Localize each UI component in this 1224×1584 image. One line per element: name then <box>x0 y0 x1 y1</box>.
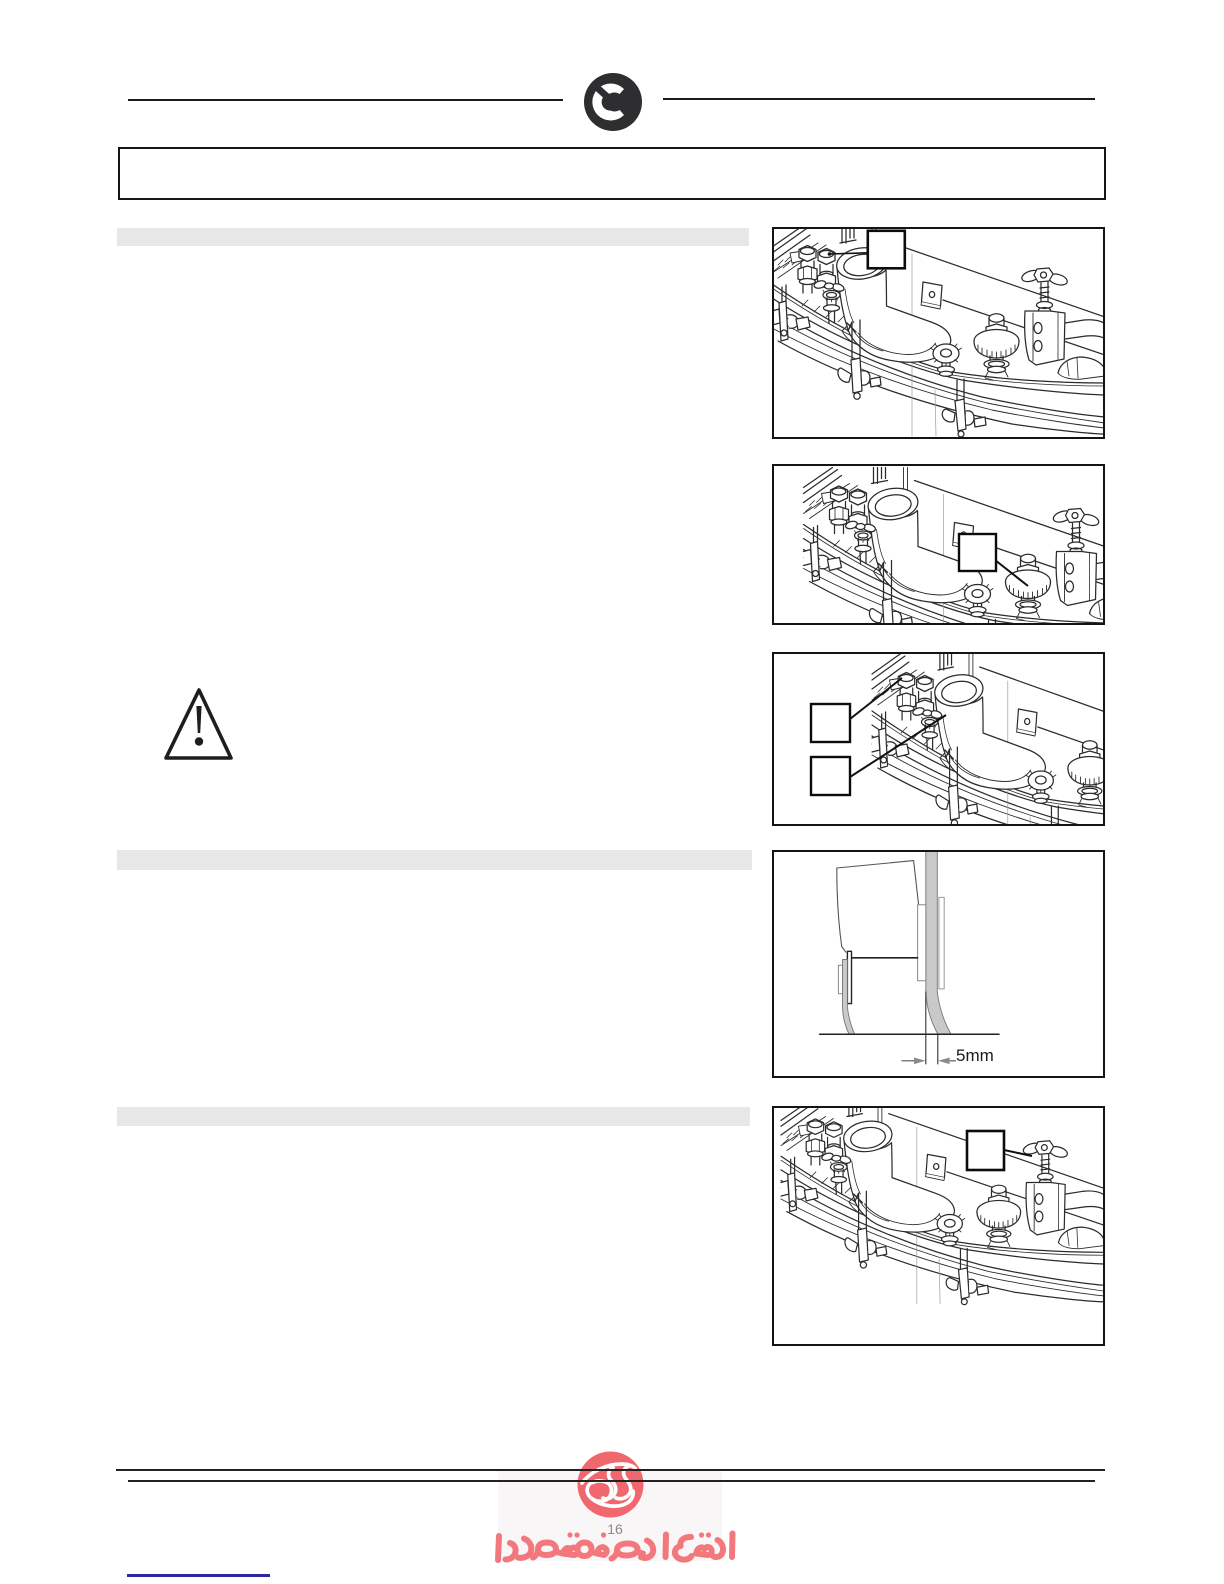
svg-text:5mm: 5mm <box>956 1046 994 1065</box>
